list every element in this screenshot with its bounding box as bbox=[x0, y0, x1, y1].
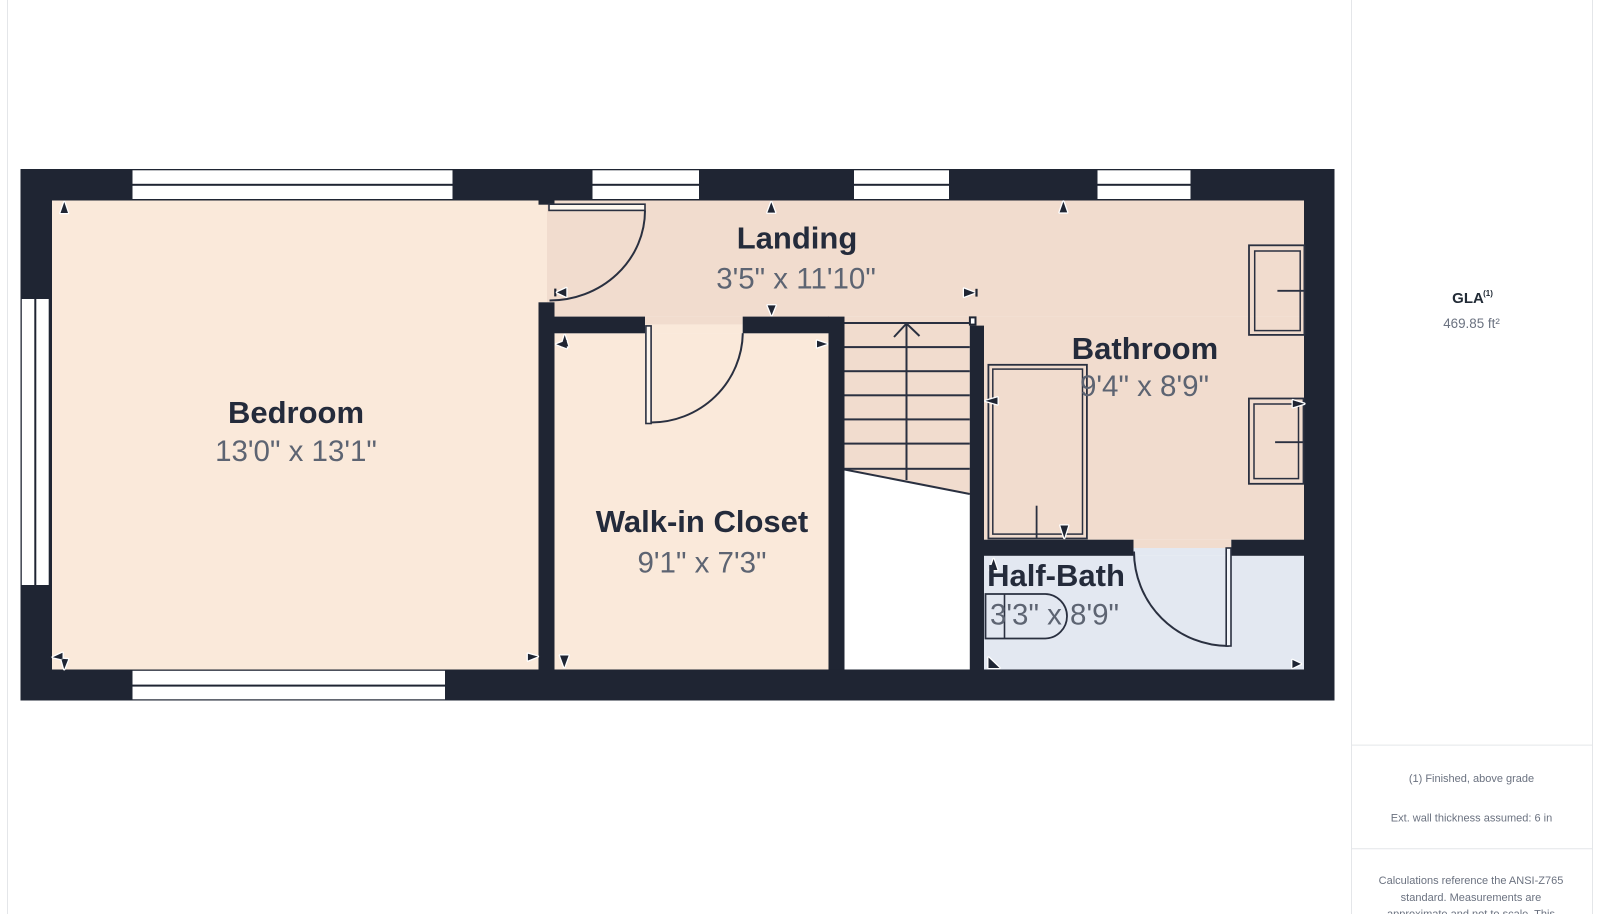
svg-text:(1): (1) bbox=[1483, 289, 1493, 298]
svg-text:Landing: Landing bbox=[737, 221, 858, 256]
svg-text:GLA: GLA bbox=[1452, 290, 1484, 307]
svg-text:9'1" x 7'3": 9'1" x 7'3" bbox=[638, 547, 767, 580]
svg-text:(1) Finished, above grade: (1) Finished, above grade bbox=[1409, 773, 1534, 785]
svg-text:Bathroom: Bathroom bbox=[1072, 331, 1218, 366]
svg-text:3'5" x 11'10": 3'5" x 11'10" bbox=[716, 262, 876, 295]
svg-text:standard. Measurements are: standard. Measurements are bbox=[1401, 892, 1542, 904]
svg-text:Calculations reference the ANS: Calculations reference the ANSI-Z765 bbox=[1379, 875, 1564, 887]
svg-text:approximate and not to scale.: approximate and not to scale. This bbox=[1387, 909, 1555, 914]
svg-text:Ext. wall thickness assumed: 6: Ext. wall thickness assumed: 6 in bbox=[1391, 813, 1552, 825]
svg-text:9'4" x 8'9": 9'4" x 8'9" bbox=[1080, 370, 1209, 403]
svg-text:13'0" x 13'1": 13'0" x 13'1" bbox=[215, 435, 377, 468]
svg-text:Half-Bath: Half-Bath bbox=[987, 558, 1125, 593]
svg-text:469.85 ft²: 469.85 ft² bbox=[1443, 316, 1500, 331]
svg-text:Walk-in Closet: Walk-in Closet bbox=[596, 504, 808, 539]
svg-text:3'3" x 8'9": 3'3" x 8'9" bbox=[990, 599, 1119, 632]
svg-text:Bedroom: Bedroom bbox=[228, 395, 364, 430]
